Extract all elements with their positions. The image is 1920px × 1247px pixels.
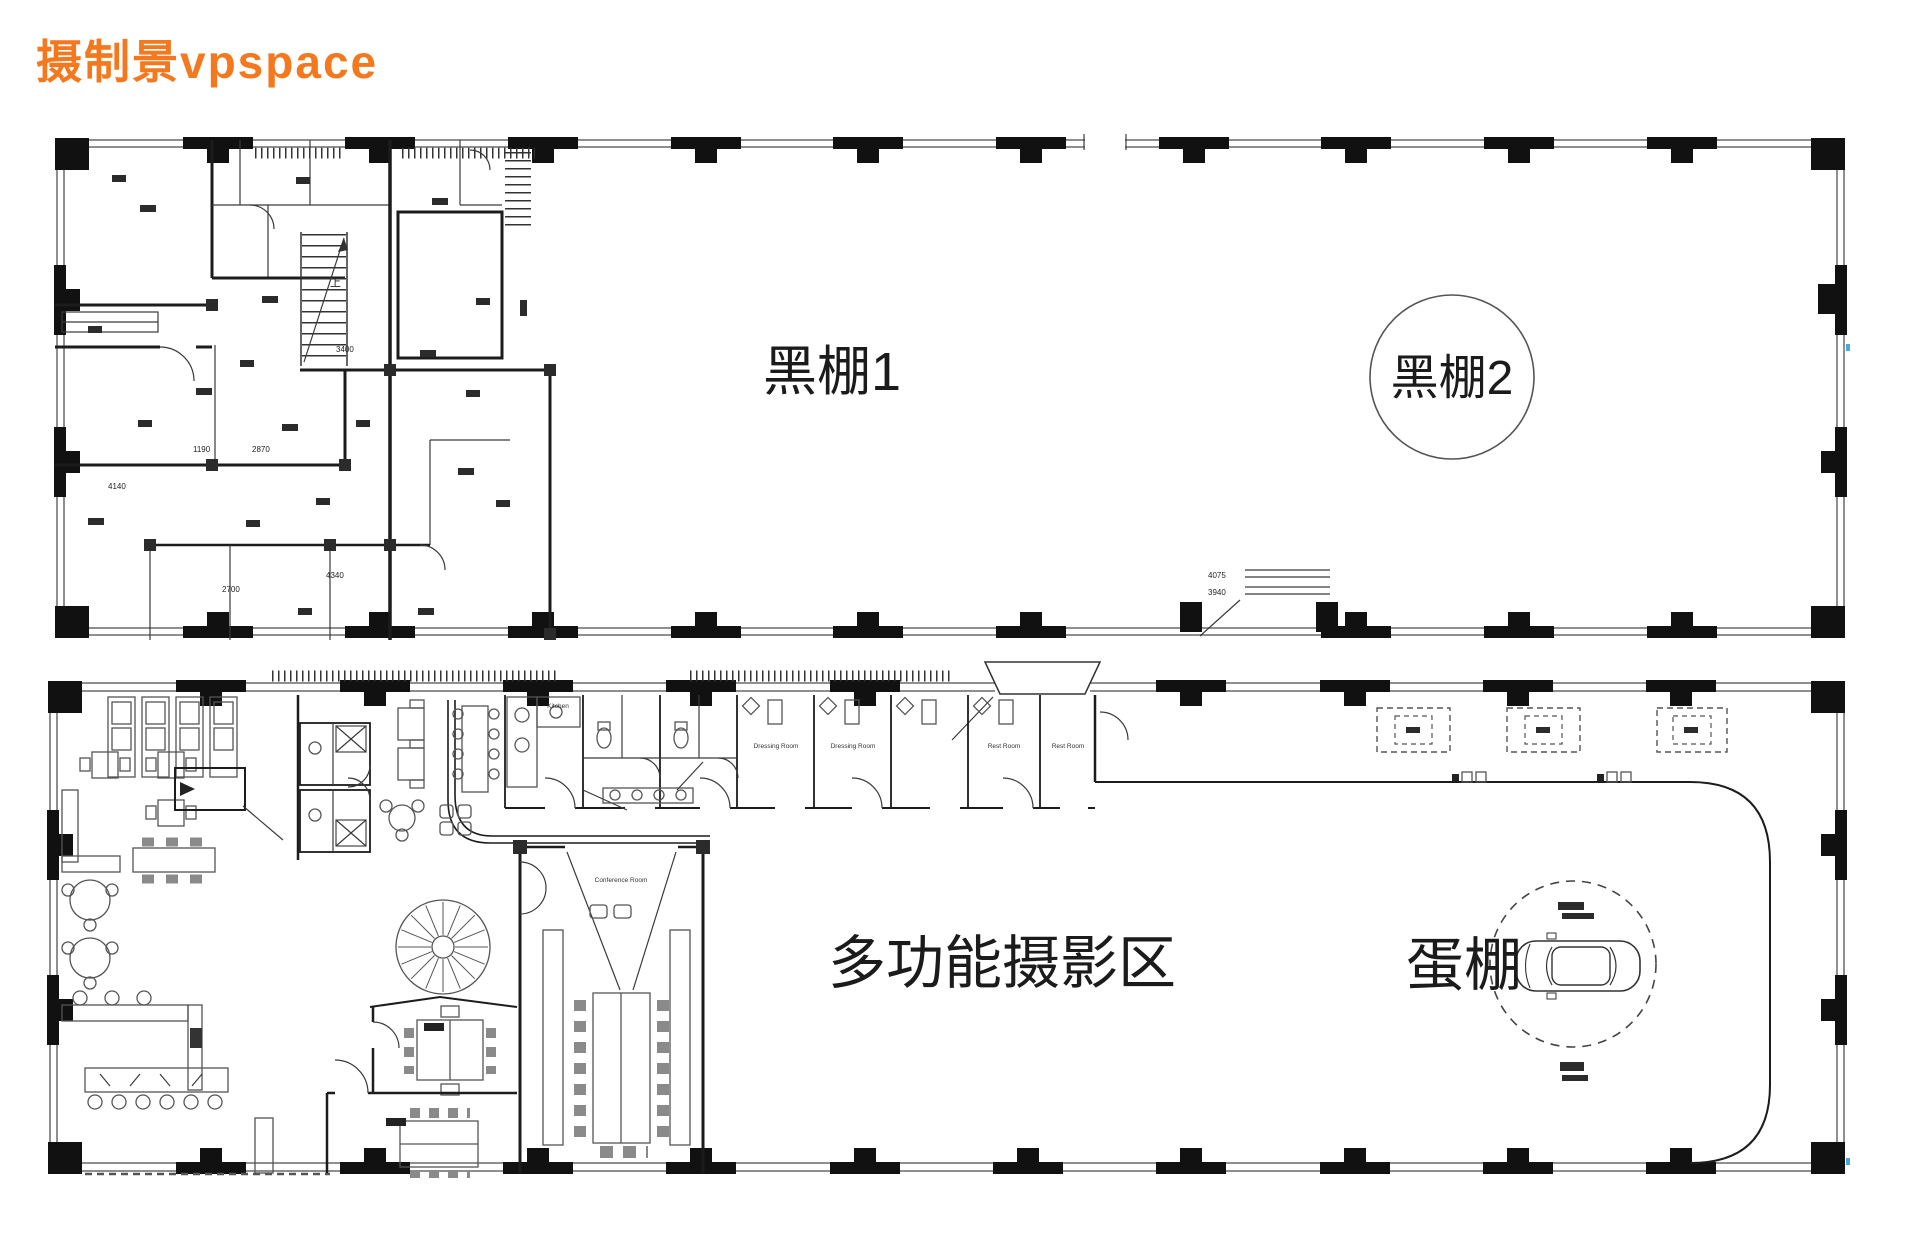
car-top-view — [1516, 933, 1640, 999]
upper-interior-rooms: 1190 2870 3400 4140 4340 2700 上 — [55, 140, 556, 640]
dim-4140: 4140 — [108, 482, 126, 491]
rest-room-label-2: Rest Room — [1052, 743, 1085, 750]
dim-entry-width: 4075 — [1208, 571, 1226, 580]
dim-2700: 2700 — [222, 585, 240, 594]
long-display-table — [85, 1068, 228, 1092]
dressing-room-label-2: Dressing Room — [831, 743, 876, 750]
conference-room-label: Conference Room — [595, 877, 648, 884]
dim-entry-depth: 3940 — [1208, 588, 1226, 597]
multi-area-label: 多功能摄影区 — [828, 931, 1176, 996]
upper-building: 1190 2870 3400 4140 4340 2700 上 4075 394… — [54, 133, 1850, 640]
stair-up-label: 上 — [330, 276, 341, 289]
spiral-staircase — [396, 900, 490, 994]
blue-tick-2 — [1846, 1158, 1850, 1165]
bar-high-table — [462, 706, 488, 792]
kitchen-label: Kitchen — [547, 703, 569, 710]
blue-tick — [1846, 344, 1850, 351]
dressing-room-label-1: Dressing Room — [754, 743, 799, 750]
conference-hall: Conference Room — [513, 840, 710, 1173]
upper-entry-vestibule: 4075 3940 — [1180, 570, 1338, 636]
floor-plan-page: 摄制景vpspace — [0, 0, 1920, 1247]
floor-plan-drawing: 1190 2870 3400 4140 4340 2700 上 4075 394… — [0, 0, 1920, 1247]
meeting-rooms — [255, 997, 517, 1174]
egg-studio-label: 蛋棚 — [1406, 933, 1522, 998]
dim-4340: 4340 — [326, 571, 344, 580]
studio1-label: 黑棚1 — [763, 342, 901, 402]
projection-screen — [175, 768, 283, 840]
rest-room-label-1: Rest Room — [988, 743, 1021, 750]
dim-1190: 1190 — [193, 445, 211, 454]
lounge-area — [62, 697, 237, 1109]
studio2-label: 黑棚2 — [1391, 352, 1514, 405]
dim-3400: 3400 — [336, 345, 354, 354]
lower-building: Dressing Room Dressing Room Rest Room Re… — [47, 662, 1850, 1174]
dim-2870: 2870 — [252, 445, 270, 454]
bathroom-pods — [300, 723, 370, 852]
